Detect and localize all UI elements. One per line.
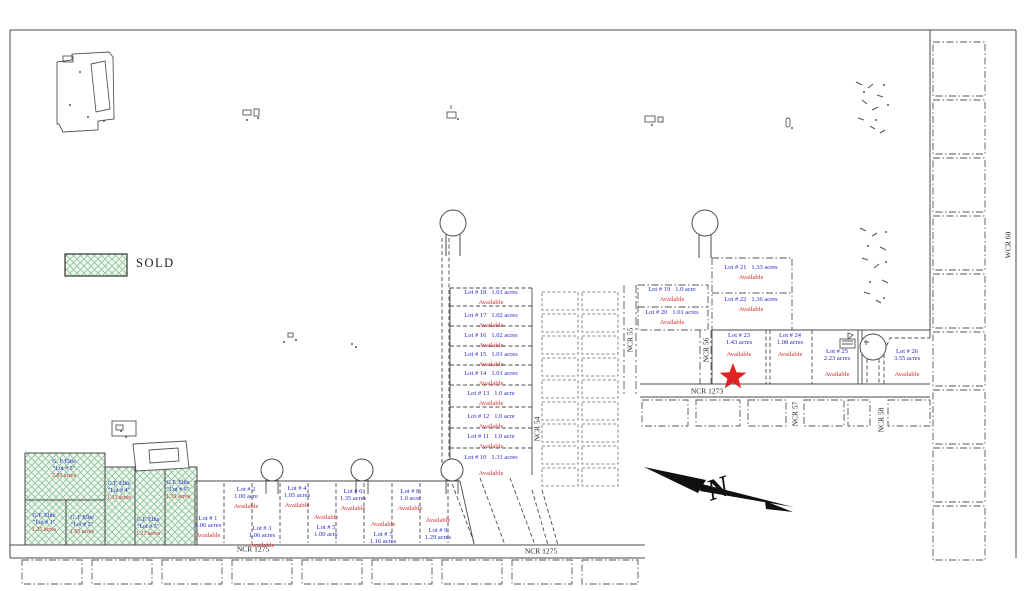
lot-17: Lot # 171.02 acres Available <box>452 312 530 329</box>
lot-label: Lot # 21.00 acre <box>224 486 268 500</box>
lot-9: Available Lot # 91.29 acres <box>417 517 459 541</box>
road-label-ncr1273: NCR 1273 <box>691 387 723 396</box>
lot-label: Lot # 121.0 acre <box>452 413 530 420</box>
availability-label: Available <box>390 505 430 512</box>
lot-24: Lot # 241.08 acres Available <box>768 332 812 358</box>
lot-12: Lot # 121.0 acre Available <box>452 413 530 430</box>
lot-25: Lot # 252.23 acres Available <box>814 348 860 378</box>
road-label-ncr54: NCR 54 <box>533 417 542 442</box>
availability-label: Available <box>277 502 317 509</box>
lot-label: Lot # 111.0 acre <box>452 433 530 440</box>
sold-lot-5: G. F Elite"Lot # 5"2.85 acres <box>36 459 92 480</box>
lot-label: Lot # 61.35 acres <box>332 488 374 502</box>
lot-label: Lot # 11.06 acres <box>190 515 226 529</box>
lot-label: Lot # 201.01 acres <box>638 309 706 316</box>
availability-label: Available <box>452 443 530 450</box>
lot-label: Lot # 161.02 acres <box>452 332 530 339</box>
road-label-ncr55: NCR 55 <box>626 328 635 353</box>
availability-label: Available <box>452 400 530 407</box>
lot-18: Lot # 181.01 acres Available <box>452 289 530 306</box>
lot-label: Lot # 191.0 acre <box>638 286 706 293</box>
lot-label: Lot # 51.00 acre <box>306 524 346 538</box>
lot-label: Lot # 141.01 acres <box>452 370 530 377</box>
lot-3: Lot # 31.06 acres Available <box>242 525 282 549</box>
sold-lot-3: G.F. Elite"Lot # 3"1.27 acres <box>130 517 166 538</box>
sold-lot-2: G. F Elite"Lot # 2"1.03 acres <box>62 515 102 536</box>
sold-legend-label: SOLD <box>136 256 175 271</box>
road-label-ncr58: NCR 58 <box>877 408 886 433</box>
availability-label: Available <box>452 299 530 306</box>
availability-label: Available <box>224 503 268 510</box>
lot-2: Lot # 21.00 acre Available <box>224 486 268 510</box>
availability-label: Available <box>452 470 530 477</box>
availability-label: Available <box>452 361 530 368</box>
sold-lot-6: G.F. Elite"Lot # 6"1.33 acres <box>160 480 196 501</box>
availability-label: Available <box>712 306 790 313</box>
lot-6: Lot # 61.35 acres Available <box>332 488 374 512</box>
lot-label: Lot # 41.05 acres <box>277 485 317 499</box>
lot-label: Lot # 252.23 acres <box>814 348 860 362</box>
availability-label: Available <box>638 319 706 326</box>
lot-label: Lot # 31.06 acres <box>242 525 282 539</box>
lot-1: Lot # 11.06 acres Available <box>190 515 226 539</box>
road-label-ncr56: NCR 56 <box>702 338 711 363</box>
lot-label: Lot # 241.08 acres <box>768 332 812 346</box>
availability-label: Available <box>638 296 706 303</box>
availability-label: Available <box>452 380 530 387</box>
lot-14: Lot # 141.01 acres Available <box>452 370 530 387</box>
lot-label: Lot # 181.01 acres <box>452 289 530 296</box>
lot-label: Lot # 81.0 acre <box>390 488 430 502</box>
availability-label: Available <box>814 371 860 378</box>
lot-13: Lot # 131.0 acre Available <box>452 390 530 407</box>
lot-label: Lot # 151.01 acres <box>452 351 530 358</box>
availability-label: Available <box>452 322 530 329</box>
lot-11: Lot # 111.0 acre Available <box>452 433 530 450</box>
lot-21: Lot # 211.33 acres Available <box>712 264 790 281</box>
lot-26: Lot # 263.55 acres Available <box>884 348 930 378</box>
plat-map: SOLD N NCR 1275 NCR 1275 NCR 1273 NCR 54… <box>0 0 1024 591</box>
sold-lot-1: G.F. Elite"Lot # 1"1.25 acres <box>26 513 62 534</box>
lot-label: Lot # 101.31 acres <box>452 454 530 461</box>
lot-label: Lot # 231.43 acres <box>714 332 764 346</box>
lot-19: Lot # 191.0 acre Available <box>638 286 706 303</box>
lot-5: Available Lot # 51.00 acre <box>306 514 346 538</box>
availability-label: Available <box>242 542 282 549</box>
availability-label: Available <box>306 514 346 521</box>
lot-10: Lot # 101.31 acres Available <box>452 454 530 477</box>
lot-4: Lot # 41.05 acres Available <box>277 485 317 509</box>
availability-label: Available <box>362 521 404 528</box>
availability-label: Available <box>452 423 530 430</box>
availability-label: Available <box>452 342 530 349</box>
availability-label: Available <box>190 532 226 539</box>
availability-label: Available <box>712 274 790 281</box>
availability-label: Available <box>768 351 812 358</box>
availability-label: Available <box>417 517 459 524</box>
lot-label: Lot # 131.0 acre <box>452 390 530 397</box>
availability-label: Available <box>332 505 374 512</box>
lot-label: Lot # 91.29 acres <box>417 527 459 541</box>
north-arrow-letter: N <box>702 469 733 508</box>
sold-lot-4: G.F. Elite"Lot # 4"1.33 acres <box>101 481 137 502</box>
lot-20: Lot # 201.01 acres Available <box>638 309 706 326</box>
lot-label: Lot # 211.33 acres <box>712 264 790 271</box>
lot-label: Lot # 221.36 acres <box>712 296 790 303</box>
availability-label: Available <box>714 351 764 358</box>
road-label-ncr1275-east: NCR 1275 <box>525 547 557 556</box>
lot-7: Available Lot # 71.16 acres <box>362 521 404 545</box>
road-label-wcr60: WCR 60 <box>1004 232 1013 258</box>
lot-22: Lot # 221.36 acres Available <box>712 296 790 313</box>
lot-15: Lot # 151.01 acres Available <box>452 351 530 368</box>
lot-8: Lot # 81.0 acre Available <box>390 488 430 512</box>
lot-23: Lot # 231.43 acres Available <box>714 332 764 358</box>
lot-16: Lot # 161.02 acres Available <box>452 332 530 349</box>
availability-label: Available <box>884 371 930 378</box>
lot-label: Lot # 71.16 acres <box>362 531 404 545</box>
lot-label: Lot # 263.55 acres <box>884 348 930 362</box>
lot-label: Lot # 171.02 acres <box>452 312 530 319</box>
road-label-ncr57: NCR 57 <box>791 402 800 427</box>
